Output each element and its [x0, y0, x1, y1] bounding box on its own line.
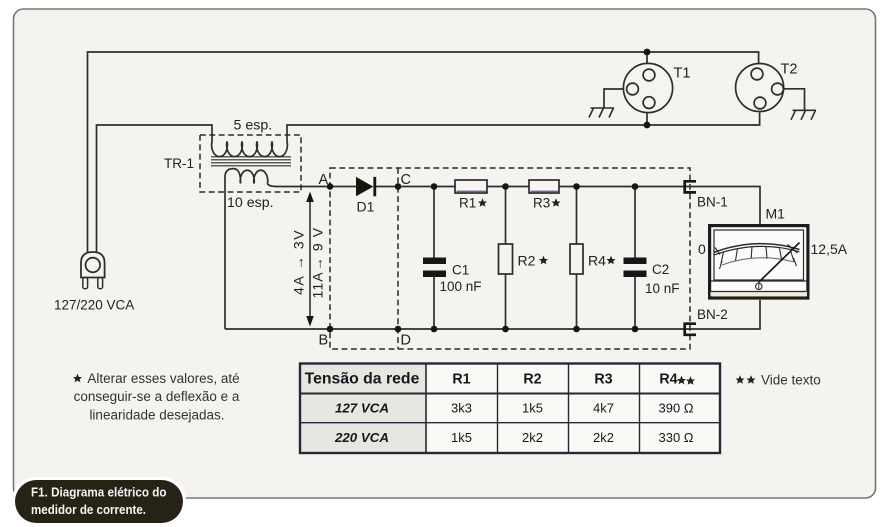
svg-text:1k5: 1k5 — [451, 430, 472, 445]
svg-text:C2: C2 — [652, 262, 669, 277]
svg-text:0: 0 — [698, 241, 706, 257]
svg-text:127/220 VCA: 127/220 VCA — [54, 298, 134, 313]
svg-text:2k2: 2k2 — [522, 430, 543, 445]
svg-text:220 VCA: 220 VCA — [334, 430, 389, 445]
svg-text:R4: R4 — [588, 253, 606, 269]
svg-text:2k2: 2k2 — [593, 430, 614, 445]
svg-text:BN-2: BN-2 — [697, 307, 728, 322]
svg-text:R3: R3 — [533, 196, 550, 211]
svg-text:3k3: 3k3 — [451, 401, 472, 416]
svg-text:Tensão da rede: Tensão da rede — [305, 371, 420, 388]
svg-text:C1: C1 — [452, 263, 469, 278]
svg-text:10 esp.: 10 esp. — [227, 195, 274, 211]
svg-text:R2: R2 — [518, 253, 536, 269]
svg-text:11A→ 9 V: 11A→ 9 V — [310, 227, 326, 298]
svg-text:R1: R1 — [452, 372, 470, 388]
svg-text:F1. Diagrama elétrico do: F1. Diagrama elétrico do — [31, 485, 167, 500]
svg-text:12,5A: 12,5A — [811, 241, 848, 257]
svg-text:100 nF: 100 nF — [440, 279, 482, 294]
svg-text:10 nF: 10 nF — [645, 281, 680, 296]
svg-text:M1: M1 — [766, 206, 786, 222]
svg-text:D: D — [401, 333, 411, 349]
svg-text:5 esp.: 5 esp. — [234, 118, 273, 134]
svg-text:C: C — [401, 172, 411, 188]
svg-text:127 VCA: 127 VCA — [335, 401, 389, 416]
svg-text:B: B — [319, 333, 329, 349]
svg-text:330 Ω: 330 Ω — [658, 430, 693, 445]
svg-text:R1: R1 — [459, 196, 476, 211]
svg-text:390 Ω: 390 Ω — [658, 401, 693, 416]
svg-text:medidor de corrente.: medidor de corrente. — [31, 502, 146, 517]
svg-text:R4: R4 — [659, 372, 677, 388]
svg-text:conseguir-se a deflexão e a: conseguir-se a deflexão e a — [74, 389, 240, 404]
svg-text:D1: D1 — [357, 199, 375, 215]
svg-text:1k5: 1k5 — [522, 401, 543, 416]
svg-text:linearidade desejadas.: linearidade desejadas. — [89, 408, 224, 423]
svg-text:R3: R3 — [594, 372, 612, 388]
svg-text:Vide texto: Vide texto — [761, 373, 821, 388]
svg-text:T1: T1 — [674, 66, 691, 82]
svg-text:T2: T2 — [781, 62, 798, 78]
svg-text:BN-1: BN-1 — [697, 195, 728, 210]
svg-text:R2: R2 — [523, 372, 541, 388]
svg-text:Alterar esses valores, até: Alterar esses valores, até — [87, 371, 239, 386]
svg-text:TR-1: TR-1 — [164, 156, 194, 171]
svg-text:A: A — [319, 172, 329, 188]
svg-text:4k7: 4k7 — [593, 401, 614, 416]
svg-text:4A → 3V: 4A → 3V — [291, 230, 307, 295]
